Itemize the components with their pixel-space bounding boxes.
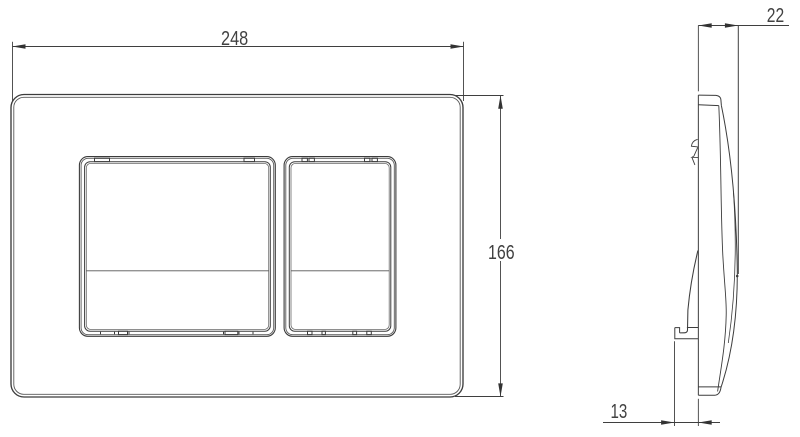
svg-text:248: 248	[221, 27, 248, 50]
svg-text:22: 22	[767, 4, 784, 27]
svg-text:166: 166	[488, 241, 515, 264]
svg-text:13: 13	[611, 400, 628, 423]
